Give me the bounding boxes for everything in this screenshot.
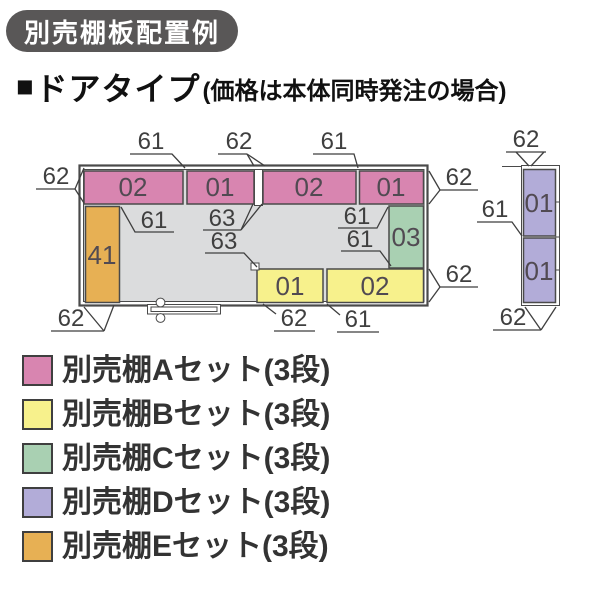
legend-label-a: 別売棚Aセット(3段) bbox=[62, 356, 330, 386]
dim-text: 62 bbox=[281, 305, 308, 332]
dim-text: 61 bbox=[141, 207, 168, 234]
dim-text: 61 bbox=[345, 306, 372, 333]
dim-62-panel-bottom: 62 bbox=[493, 304, 556, 331]
shelf-number: 02 bbox=[361, 271, 390, 301]
legend-swatch-b bbox=[22, 399, 53, 430]
legend-label-b: 別売棚Bセット(3段) bbox=[62, 400, 330, 430]
dim-text: 62 bbox=[43, 163, 70, 190]
legend: 別売棚Aセット(3段) 別売棚Bセット(3段) 別売棚Cセット(3段) 別売棚D… bbox=[22, 355, 330, 575]
legend-item-d: 別売棚Dセット(3段) bbox=[22, 487, 330, 518]
legend-swatch-c bbox=[22, 443, 53, 474]
legend-swatch-e bbox=[22, 531, 53, 562]
legend-swatch-a bbox=[22, 355, 53, 386]
dim-62-right-mid: 62 bbox=[429, 261, 478, 302]
wall-gap-62 bbox=[255, 170, 263, 206]
legend-item-b: 別売棚Bセット(3段) bbox=[22, 399, 330, 430]
shelf-number: 01 bbox=[377, 172, 406, 202]
legend-label-c: 別売棚Cセット(3段) bbox=[62, 444, 330, 474]
dim-62-left: 62 bbox=[36, 163, 84, 203]
dim-text: 61 bbox=[347, 226, 374, 253]
dim-text: 61 bbox=[321, 128, 348, 155]
dim-text: 62 bbox=[226, 128, 253, 155]
door-roller-top bbox=[156, 298, 165, 307]
door-roller-bottom bbox=[156, 314, 165, 323]
legend-item-e: 別売棚Eセット(3段) bbox=[22, 531, 330, 562]
shelf-number: 01 bbox=[206, 172, 235, 202]
floor-plan-top-view: 02 01 02 01 41 03 01 02 bbox=[80, 166, 428, 323]
shelf-number: 02 bbox=[119, 172, 148, 202]
shelf-number: 03 bbox=[392, 222, 421, 252]
dim-62-bottom-left: 62 bbox=[51, 305, 114, 332]
shelf-number: 02 bbox=[295, 172, 324, 202]
dim-text: 61 bbox=[482, 196, 509, 223]
shelf-number: 41 bbox=[88, 240, 117, 270]
shelf-number: 01 bbox=[276, 271, 305, 301]
dim-text: 61 bbox=[138, 128, 165, 155]
dim-text: 62 bbox=[500, 304, 527, 331]
dim-62-bottom-mid: 62 bbox=[263, 304, 315, 332]
dim-61-bottom: 61 bbox=[327, 304, 379, 333]
dim-62-right-top: 62 bbox=[429, 164, 478, 204]
legend-label-e: 別売棚Eセット(3段) bbox=[62, 532, 329, 562]
dim-text: 63 bbox=[211, 228, 238, 255]
legend-item-a: 別売棚Aセット(3段) bbox=[22, 355, 330, 386]
dim-61-panel-left: 61 bbox=[477, 196, 522, 236]
dim-61-top-left: 61 bbox=[130, 128, 185, 168]
shelf-number: 01 bbox=[525, 188, 554, 218]
dim-61-top-right: 61 bbox=[313, 128, 358, 168]
shelf-number: 01 bbox=[525, 256, 554, 286]
legend-label-d: 別売棚Dセット(3段) bbox=[62, 488, 330, 518]
dim-62-panel-top: 62 bbox=[506, 126, 546, 166]
dim-text: 62 bbox=[513, 126, 540, 153]
dim-text: 62 bbox=[446, 164, 473, 191]
side-panel-view: 01 01 bbox=[502, 166, 560, 306]
dim-62-top-center: 62 bbox=[218, 128, 265, 166]
dim-text: 62 bbox=[446, 261, 473, 288]
dim-text: 62 bbox=[58, 305, 85, 332]
legend-item-c: 別売棚Cセット(3段) bbox=[22, 443, 330, 474]
legend-swatch-d bbox=[22, 487, 53, 518]
